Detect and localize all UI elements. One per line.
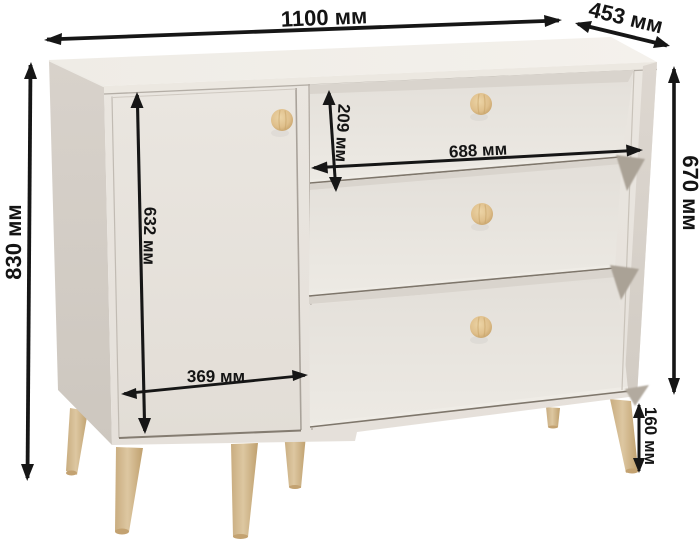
svg-text:670 мм: 670 мм <box>678 155 700 230</box>
svg-text:830 мм: 830 мм <box>1 204 26 279</box>
svg-text:369 мм: 369 мм <box>187 367 245 386</box>
svg-text:1100 мм: 1100 мм <box>280 3 367 31</box>
svg-text:632 мм: 632 мм <box>139 207 159 266</box>
svg-text:209 мм: 209 мм <box>331 103 353 162</box>
svg-text:453 мм: 453 мм <box>586 0 665 38</box>
svg-text:160 мм: 160 мм <box>641 407 660 465</box>
svg-text:688 мм: 688 мм <box>448 139 507 161</box>
